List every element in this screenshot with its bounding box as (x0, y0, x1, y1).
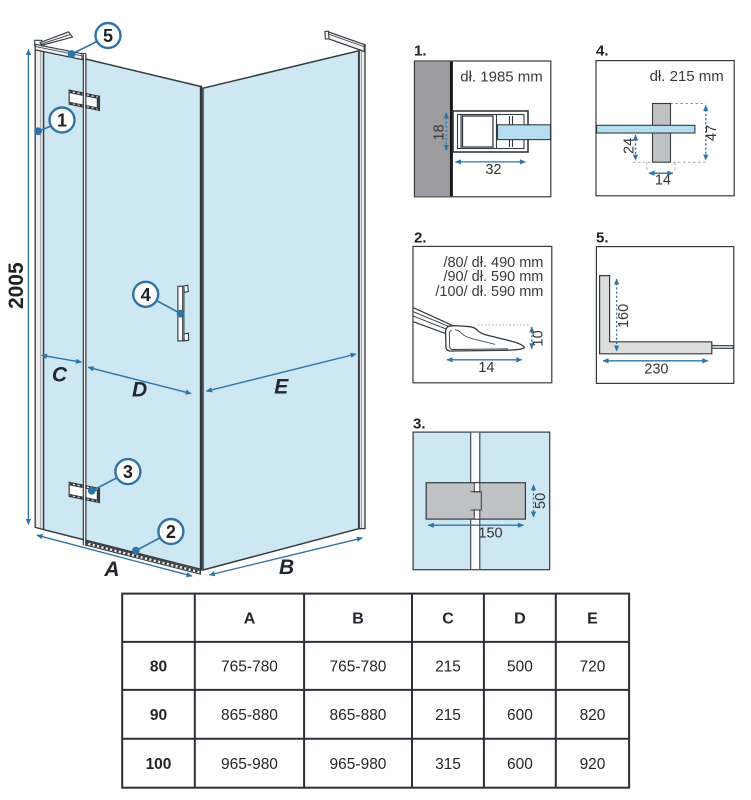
svg-text:14: 14 (655, 173, 671, 189)
svg-text:2005: 2005 (5, 262, 28, 309)
svg-text:315: 315 (435, 756, 461, 773)
svg-text:820: 820 (580, 707, 606, 724)
svg-text:18: 18 (431, 124, 447, 140)
svg-text:4: 4 (141, 285, 151, 305)
svg-text:5.: 5. (596, 230, 609, 247)
svg-text:C: C (52, 364, 68, 387)
svg-text:500: 500 (507, 659, 533, 676)
svg-text:765-780: 765-780 (330, 659, 387, 676)
svg-text:600: 600 (507, 756, 533, 773)
svg-text:5: 5 (103, 26, 113, 46)
svg-text:A: A (244, 611, 256, 628)
svg-text:14: 14 (478, 360, 494, 376)
svg-text:47: 47 (704, 125, 720, 141)
svg-text:90: 90 (150, 707, 167, 724)
svg-text:965-980: 965-980 (330, 756, 387, 773)
svg-text:dł. 1985 mm: dł. 1985 mm (460, 69, 543, 86)
svg-text:D: D (514, 611, 526, 628)
svg-text:32: 32 (485, 162, 501, 178)
svg-text:4.: 4. (596, 43, 609, 60)
svg-text:50: 50 (533, 493, 549, 509)
svg-text:E: E (587, 611, 598, 628)
svg-text:100: 100 (146, 756, 172, 773)
svg-text:3.: 3. (413, 416, 426, 433)
svg-text:24: 24 (622, 138, 638, 154)
svg-text:230: 230 (644, 362, 668, 378)
svg-text:720: 720 (580, 659, 606, 676)
svg-text:160: 160 (616, 304, 632, 328)
svg-text:215: 215 (435, 707, 461, 724)
svg-text:1: 1 (57, 111, 67, 131)
svg-text:2: 2 (166, 522, 176, 542)
svg-text:3: 3 (123, 462, 133, 482)
svg-text:C: C (442, 611, 454, 628)
svg-text:B: B (352, 611, 364, 628)
svg-text:215: 215 (435, 659, 461, 676)
svg-text:600: 600 (507, 707, 533, 724)
svg-text:D: D (132, 379, 147, 402)
svg-text:dł. 215 mm: dł. 215 mm (650, 68, 724, 85)
svg-text:865-880: 865-880 (330, 707, 387, 724)
svg-text:150: 150 (478, 526, 502, 542)
svg-text:/90/ dł. 590 mm: /90/ dł. 590 mm (443, 269, 543, 285)
svg-text:B: B (279, 556, 294, 579)
svg-text:865-880: 865-880 (221, 707, 278, 724)
svg-text:2.: 2. (414, 230, 427, 247)
svg-text:E: E (274, 376, 289, 399)
svg-text:965-980: 965-980 (221, 756, 278, 773)
svg-text:10: 10 (531, 330, 547, 346)
svg-text:80: 80 (150, 659, 167, 676)
svg-text:A: A (103, 558, 119, 581)
svg-text:920: 920 (580, 756, 606, 773)
svg-text:/100/ dł. 590 mm: /100/ dł. 590 mm (435, 284, 543, 300)
svg-text:765-780: 765-780 (221, 659, 278, 676)
svg-text:1.: 1. (414, 43, 427, 60)
